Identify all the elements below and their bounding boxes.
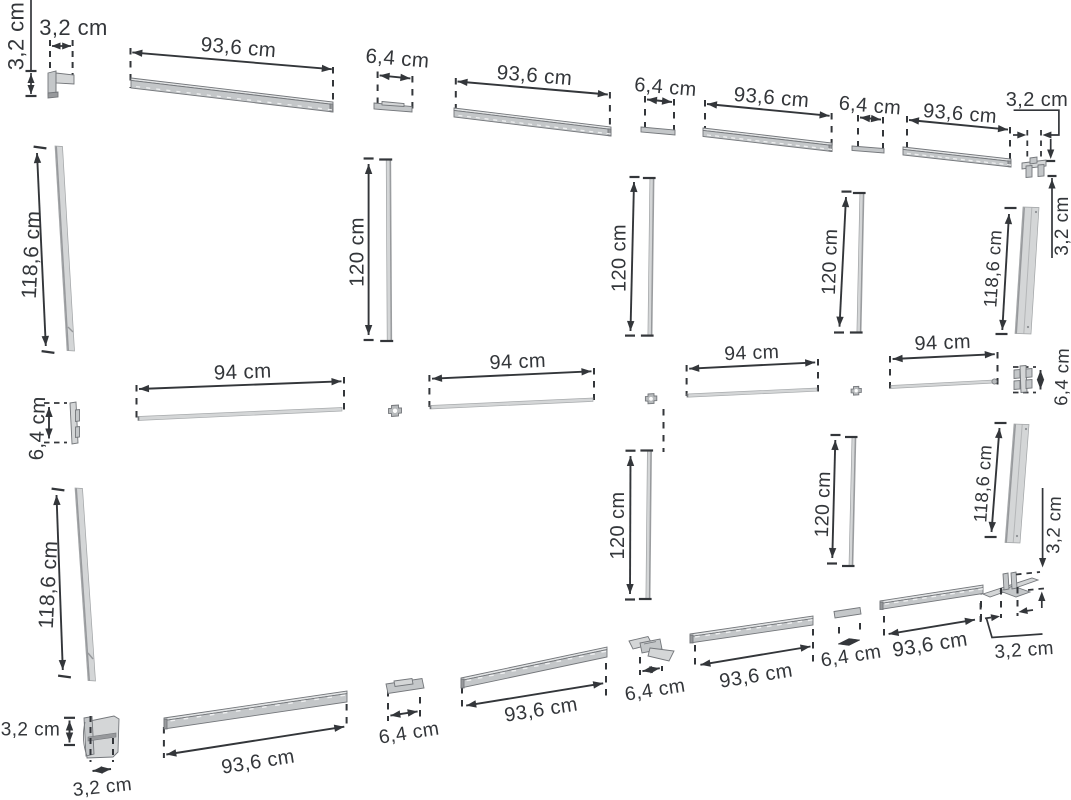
svg-text:6,4 cm: 6,4 cm xyxy=(25,396,50,461)
svg-text:94 cm: 94 cm xyxy=(213,359,272,384)
svg-text:120 cm: 120 cm xyxy=(811,471,835,538)
svg-text:93,6 cm: 93,6 cm xyxy=(200,33,277,62)
svg-text:118,6 cm: 118,6 cm xyxy=(969,444,995,523)
svg-text:94 cm: 94 cm xyxy=(724,341,780,365)
svg-text:3,2 cm: 3,2 cm xyxy=(1042,495,1065,554)
svg-text:6,4 cm: 6,4 cm xyxy=(377,717,441,748)
svg-text:3,2 cm: 3,2 cm xyxy=(1052,196,1071,255)
svg-text:6,4 cm: 6,4 cm xyxy=(1050,347,1071,406)
svg-text:6,4 cm: 6,4 cm xyxy=(633,74,697,101)
svg-text:94 cm: 94 cm xyxy=(489,350,546,374)
svg-text:3,2 cm: 3,2 cm xyxy=(4,2,29,70)
svg-text:3,2 cm: 3,2 cm xyxy=(39,15,107,40)
svg-text:3,2 cm: 3,2 cm xyxy=(72,774,133,800)
svg-text:93,6 cm: 93,6 cm xyxy=(718,659,794,692)
svg-text:6,4 cm: 6,4 cm xyxy=(365,44,431,72)
svg-text:3,2 cm: 3,2 cm xyxy=(1006,89,1068,111)
svg-text:94 cm: 94 cm xyxy=(914,331,971,355)
svg-text:6,4 cm: 6,4 cm xyxy=(623,674,687,705)
svg-text:93,6 cm: 93,6 cm xyxy=(922,100,998,128)
svg-text:6,4 cm: 6,4 cm xyxy=(819,640,883,671)
svg-text:93,6 cm: 93,6 cm xyxy=(220,745,296,778)
svg-text:118,6 cm: 118,6 cm xyxy=(979,229,1005,308)
svg-text:120 cm: 120 cm xyxy=(818,228,842,295)
svg-text:120 cm: 120 cm xyxy=(346,217,369,287)
svg-text:120 cm: 120 cm xyxy=(609,224,631,292)
svg-text:3,2 cm: 3,2 cm xyxy=(1,720,60,741)
svg-text:3,2 cm: 3,2 cm xyxy=(994,638,1055,663)
svg-text:120 cm: 120 cm xyxy=(607,492,629,560)
